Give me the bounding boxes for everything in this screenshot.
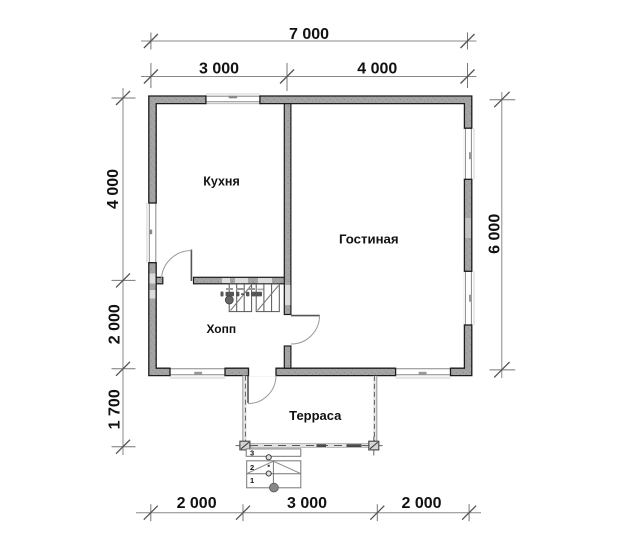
svg-text:4 000: 4 000 [105, 169, 122, 209]
svg-text:7 000: 7 000 [289, 26, 329, 43]
svg-text:3 000: 3 000 [199, 61, 239, 78]
svg-text:3 000: 3 000 [287, 495, 327, 512]
svg-text:2 000: 2 000 [177, 495, 217, 512]
svg-text:6 000: 6 000 [487, 214, 504, 254]
svg-text:Кухня: Кухня [203, 174, 240, 188]
svg-text:4 000: 4 000 [357, 61, 397, 78]
svg-text:1: 1 [250, 476, 254, 485]
svg-text:Хопп: Хопп [206, 322, 236, 336]
svg-text:2 000: 2 000 [107, 304, 124, 344]
svg-text:Терраса: Терраса [289, 408, 342, 423]
svg-text:1 700: 1 700 [107, 389, 124, 429]
svg-text:Гостиная: Гостиная [339, 231, 399, 246]
svg-text:2 000: 2 000 [401, 495, 441, 512]
svg-text:2: 2 [250, 463, 254, 472]
svg-text:3: 3 [250, 448, 254, 457]
